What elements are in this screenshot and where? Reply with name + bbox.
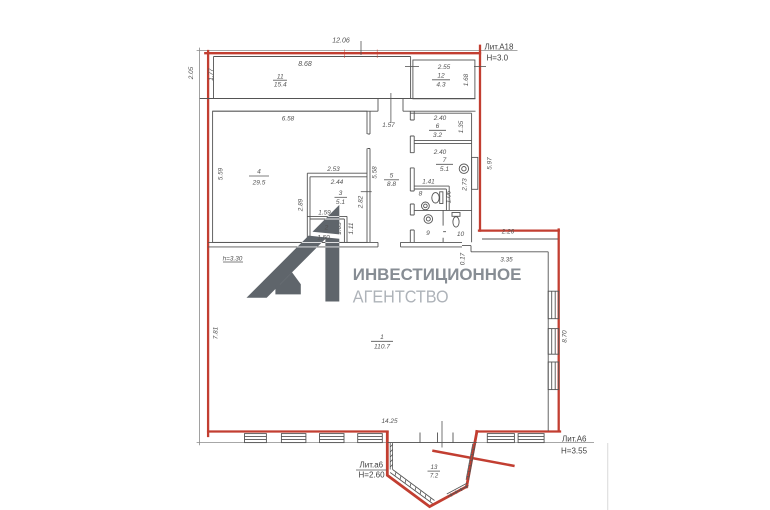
svg-text:3.2: 3.2 bbox=[433, 132, 442, 139]
svg-text:2.40: 2.40 bbox=[433, 149, 447, 156]
svg-text:9: 9 bbox=[426, 230, 430, 237]
svg-text:2.44: 2.44 bbox=[330, 179, 344, 186]
svg-text:h=3.30: h=3.30 bbox=[223, 255, 243, 262]
svg-text:2.89: 2.89 bbox=[298, 198, 305, 212]
svg-text:14.25: 14.25 bbox=[382, 418, 398, 425]
svg-text:2.55: 2.55 bbox=[437, 64, 451, 71]
svg-text:2.40: 2.40 bbox=[433, 115, 447, 122]
svg-text:Лит.А6: Лит.А6 bbox=[562, 435, 587, 444]
svg-text:5.1: 5.1 bbox=[336, 199, 345, 206]
svg-text:6.58: 6.58 bbox=[282, 115, 295, 122]
svg-text:4.3: 4.3 bbox=[436, 82, 445, 89]
svg-text:2.82: 2.82 bbox=[358, 195, 365, 209]
svg-text:3: 3 bbox=[339, 190, 343, 197]
svg-text:7.81: 7.81 bbox=[213, 326, 220, 339]
svg-text:Лит.А18: Лит.А18 bbox=[485, 43, 515, 52]
svg-text:1.11: 1.11 bbox=[348, 222, 355, 234]
svg-text:8.70: 8.70 bbox=[562, 330, 569, 343]
svg-text:8.68: 8.68 bbox=[298, 61, 312, 68]
svg-text:1.41: 1.41 bbox=[422, 178, 435, 185]
svg-text:10: 10 bbox=[457, 231, 465, 238]
svg-text:11: 11 bbox=[277, 73, 284, 80]
svg-text:8.8: 8.8 bbox=[387, 181, 396, 188]
svg-text:4: 4 bbox=[257, 169, 261, 176]
svg-text:1.35: 1.35 bbox=[458, 120, 465, 133]
svg-text:2.53: 2.53 bbox=[326, 166, 340, 173]
svg-text:ИНВЕСТИЦИОННОЕ: ИНВЕСТИЦИОННОЕ bbox=[353, 265, 522, 284]
svg-text:12: 12 bbox=[437, 73, 445, 80]
svg-text:АГЕНТСТВО: АГЕНТСТВО bbox=[353, 287, 449, 307]
svg-text:5: 5 bbox=[390, 173, 394, 180]
svg-text:Лит.а6: Лит.а6 bbox=[360, 461, 384, 470]
svg-text:7: 7 bbox=[443, 157, 447, 164]
svg-text:1.77: 1.77 bbox=[208, 68, 215, 81]
svg-text:0.17: 0.17 bbox=[460, 252, 467, 265]
svg-text:2.26: 2.26 bbox=[501, 229, 515, 236]
svg-text:Н=3.0: Н=3.0 bbox=[487, 54, 509, 63]
svg-text:29.5: 29.5 bbox=[252, 180, 266, 187]
svg-text:8: 8 bbox=[419, 191, 423, 198]
svg-text:12.06: 12.06 bbox=[332, 38, 350, 45]
svg-text:15.4: 15.4 bbox=[274, 82, 287, 89]
svg-text:1.68: 1.68 bbox=[463, 73, 470, 86]
svg-text:2.05: 2.05 bbox=[188, 66, 195, 80]
svg-text:3.35: 3.35 bbox=[500, 256, 513, 263]
svg-text:5.97: 5.97 bbox=[487, 157, 494, 170]
svg-text:5.59: 5.59 bbox=[218, 167, 225, 180]
svg-text:5.58: 5.58 bbox=[372, 166, 379, 179]
svg-text:Н=3.55: Н=3.55 bbox=[561, 447, 588, 456]
svg-text:1.06: 1.06 bbox=[446, 190, 453, 203]
svg-text:5.1: 5.1 bbox=[440, 166, 449, 173]
svg-text:2.73: 2.73 bbox=[462, 178, 469, 192]
svg-text:1.57: 1.57 bbox=[382, 122, 395, 129]
svg-text:13: 13 bbox=[431, 465, 438, 471]
svg-text:1: 1 bbox=[380, 334, 384, 341]
svg-text:110.7: 110.7 bbox=[374, 344, 390, 351]
svg-text:6: 6 bbox=[436, 123, 440, 130]
svg-text:7.2: 7.2 bbox=[430, 473, 439, 479]
svg-text:Н=2.60: Н=2.60 bbox=[359, 471, 386, 480]
svg-text:2: 2 bbox=[324, 225, 329, 232]
